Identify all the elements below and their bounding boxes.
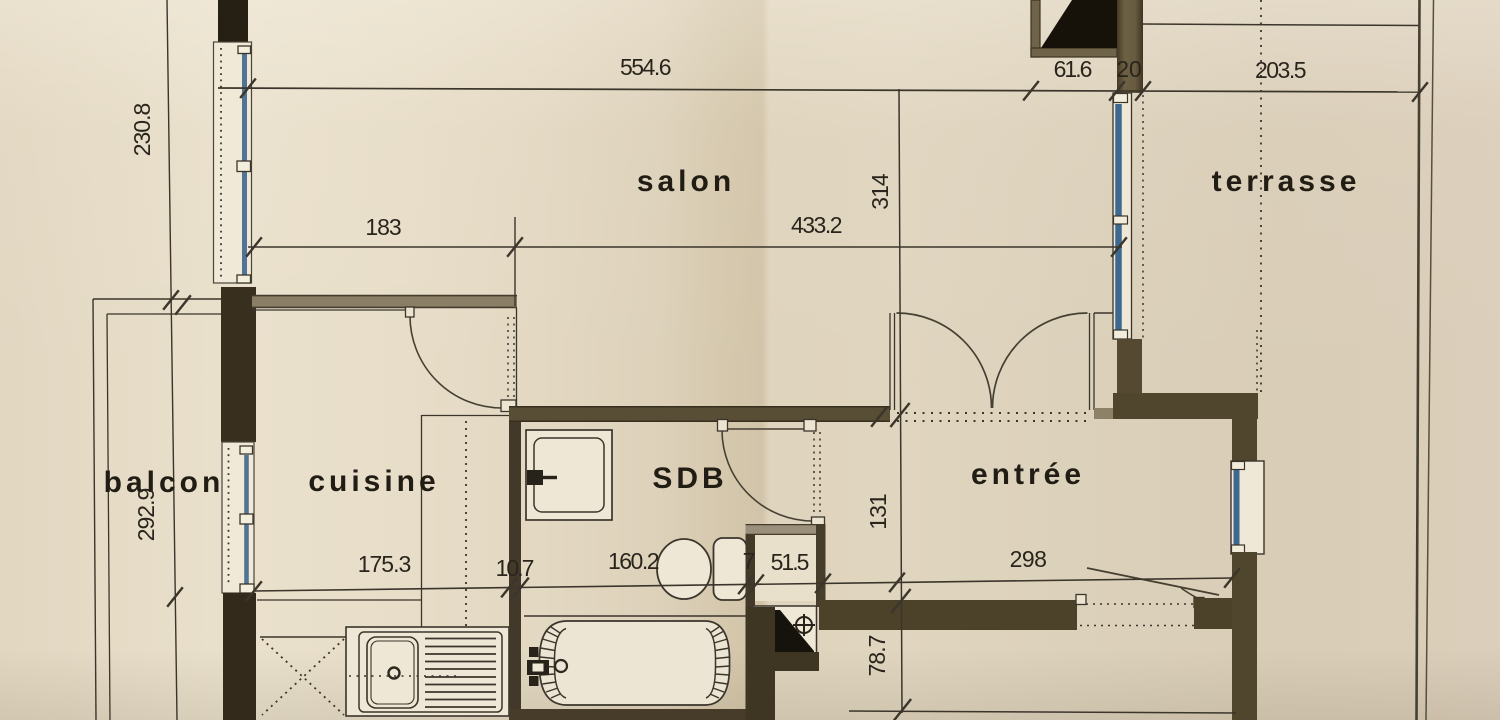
svg-text:balcon: balcon [104,466,225,499]
svg-text:131: 131 [865,494,891,530]
svg-text:10.7: 10.7 [496,555,534,581]
svg-text:230.8: 230.8 [129,104,155,157]
svg-text:298: 298 [1010,546,1047,572]
svg-text:554.6: 554.6 [620,54,671,80]
svg-text:61.6: 61.6 [1054,56,1092,82]
svg-text:314: 314 [867,173,893,210]
svg-text:SDB: SDB [652,462,727,495]
svg-text:433.2: 433.2 [791,212,842,238]
svg-text:salon: salon [637,165,735,198]
svg-text:terrasse: terrasse [1212,165,1361,198]
svg-text:78.7: 78.7 [864,635,890,676]
svg-text:160.2: 160.2 [608,548,659,574]
svg-text:175.3: 175.3 [358,551,411,577]
svg-text:51.5: 51.5 [771,549,809,575]
svg-text:20: 20 [1116,56,1142,82]
svg-text:292.9: 292.9 [133,489,159,542]
svg-text:183: 183 [365,214,401,240]
svg-text:203.5: 203.5 [1255,57,1306,83]
svg-text:7: 7 [743,548,756,574]
svg-text:entrée: entrée [971,458,1085,491]
svg-text:cuisine: cuisine [308,465,439,498]
